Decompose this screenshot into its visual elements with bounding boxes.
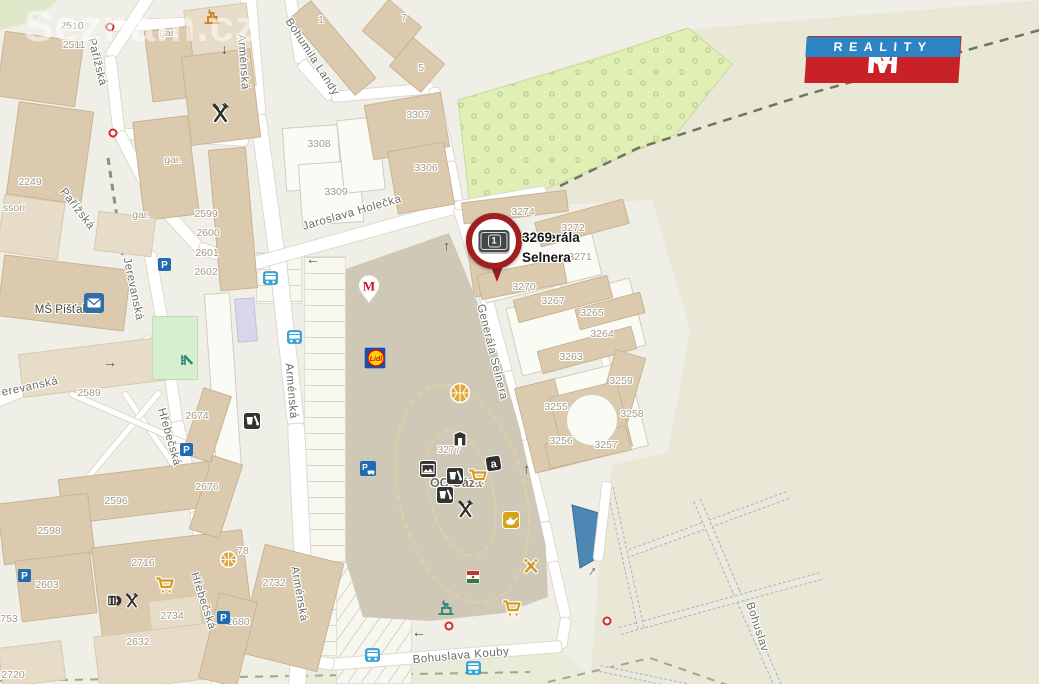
house-number: 2249 — [18, 176, 41, 188]
svg-text:P: P — [362, 462, 368, 472]
house-number: 3256 — [549, 435, 572, 447]
house-number: 2600 — [196, 227, 219, 239]
house-number: 3257 — [594, 439, 617, 451]
house-number: 2598 — [37, 525, 60, 537]
house-number: 3259 — [609, 375, 632, 387]
house-number: 2599 — [194, 208, 217, 220]
house-number: 3309 — [324, 186, 347, 198]
svg-text:P: P — [21, 571, 28, 582]
marker-label-number: 3269 — [522, 228, 552, 248]
house-number: 2676 — [195, 481, 218, 493]
one-way-arrow-icon: → — [103, 355, 117, 369]
building — [6, 101, 94, 205]
gate-marker-icon — [445, 622, 454, 631]
building — [181, 48, 261, 146]
one-way-arrow-icon: → — [437, 240, 451, 254]
house-number: 5 — [418, 62, 424, 74]
house-number: 753 — [0, 613, 18, 625]
house-number: 3258 — [620, 408, 643, 420]
house-number: 2603 — [35, 579, 58, 591]
house-number: ssori — [3, 202, 25, 214]
house-number: 2734 — [160, 610, 183, 622]
building — [152, 316, 198, 380]
house-number: 3267 — [541, 295, 564, 307]
svg-text:P: P — [220, 613, 227, 624]
gate-marker-icon — [109, 129, 118, 138]
svg-text:P: P — [161, 260, 168, 271]
house-number: 2720 — [1, 669, 24, 681]
house-number: 3308 — [307, 138, 330, 150]
svg-text:P: P — [183, 445, 190, 456]
map-canvas[interactable]: Seznam.cz 1 Generála Selnera 3269 M&M RE… — [0, 0, 1039, 684]
house-number: 2716 — [131, 557, 154, 569]
house-number: 2674 — [185, 410, 208, 422]
house-number: 7 — [401, 12, 407, 24]
house-number: 3307 — [406, 109, 429, 121]
house-number: 2601 — [195, 247, 218, 259]
house-number: 3255 — [544, 401, 567, 413]
house-number: 3274 — [511, 206, 534, 218]
one-way-arrow-icon: → — [517, 463, 531, 477]
seznam-watermark: Seznam.cz — [24, 2, 258, 52]
house-number: 2732 — [262, 577, 285, 589]
house-number: 78 — [237, 545, 249, 557]
house-number: 1 — [318, 14, 324, 26]
building-badge-icon: 1 — [479, 230, 510, 252]
house-number: 2596 — [104, 495, 127, 507]
marker-pin[interactable]: 1 — [466, 213, 522, 269]
building — [234, 297, 258, 343]
house-number: 3264 — [590, 328, 613, 340]
one-way-arrow-icon: → — [306, 257, 320, 271]
house-number: 2602 — [194, 266, 217, 278]
house-number: 2632 — [126, 636, 149, 648]
house-number: 3270 — [512, 281, 535, 293]
svg-text:M: M — [363, 279, 375, 294]
house-number: 3306 — [414, 162, 437, 174]
house-number: 2589 — [77, 387, 100, 399]
svg-text:Lidl: Lidl — [370, 356, 383, 363]
house-number: 3263 — [559, 351, 582, 363]
gate-marker-icon — [603, 617, 612, 626]
one-way-arrow-icon: → — [412, 630, 426, 644]
mm-logo-reality-bar: REALITY — [805, 37, 960, 57]
house-number: 3265 — [580, 307, 603, 319]
house-number: gar. — [132, 209, 150, 221]
house-number: gar. — [164, 154, 182, 166]
